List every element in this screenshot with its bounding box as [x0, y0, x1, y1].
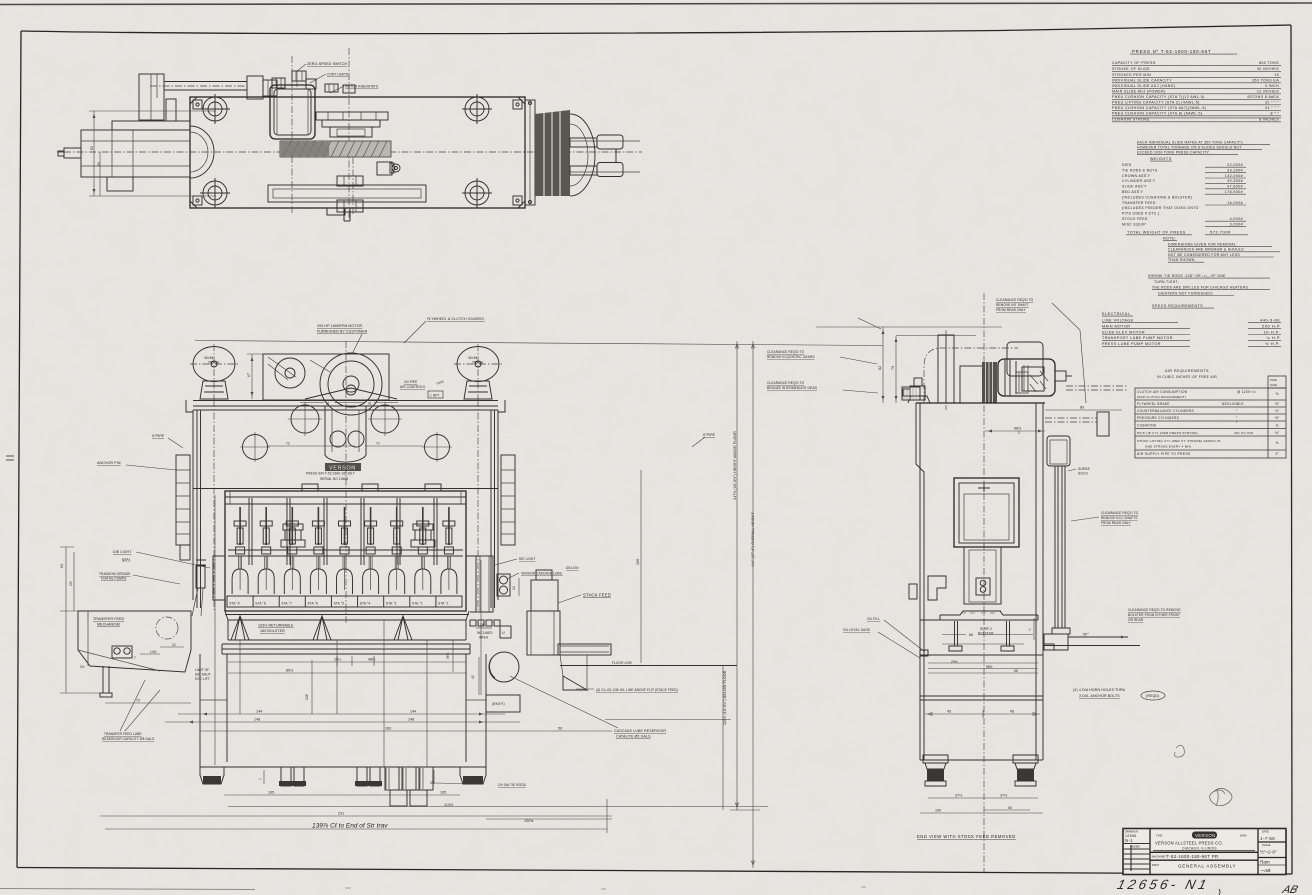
svg-text:105: 105: [268, 791, 274, 795]
svg-text:55½: 55½: [986, 665, 993, 669]
svg-text:⅛: ⅛: [1276, 441, 1279, 445]
svg-text:STA.°8: STA.°8: [255, 602, 266, 606]
svg-text:2½: 2½: [69, 581, 73, 586]
svg-text:Ram: Ram: [1260, 860, 1270, 865]
svg-text:67: 67: [247, 373, 251, 377]
svg-text:8 ″ ″: 8 ″ ″: [1270, 112, 1279, 116]
svg-text:SLIDE ASSʼY: SLIDE ASSʼY: [1122, 185, 1147, 189]
svg-text:15: 15: [1274, 73, 1279, 77]
svg-text:72: 72: [376, 442, 380, 446]
svg-text:SHRINK TIE RODS .228″ OR ¹: SHRINK TIE RODS .228″ OR ¹¹⁄₁₆ OF ONE: [1148, 274, 1226, 278]
svg-text:CUSHIONS: CUSHIONS: [1137, 424, 1156, 428]
svg-text:444" (37'-0") OVERALL HEIGHT: 444" (37'-0") OVERALL HEIGHT: [751, 512, 755, 567]
svg-text:CASCADE LUBE RESERVOIR: CASCADE LUBE RESERVOIR: [614, 729, 666, 733]
svg-text:INDIVIDUAL SLIDE ADJ (HAND): INDIVIDUAL SLIDE ADJ (HAND): [1112, 84, 1175, 88]
svg-text:800 TONS: 800 TONS: [1259, 61, 1279, 65]
svg-text:WEIGHTS: WEIGHTS: [1150, 157, 1172, 161]
svg-text:CLEARANCE REQ'D TO REMOVE: CLEARANCE REQ'D TO REMOVE: [1128, 608, 1181, 612]
svg-text:SPECS REQUIREMENTS: SPECS REQUIREMENTS: [1152, 304, 1203, 308]
svg-text:200 H.P: 200 H.P: [1262, 323, 1280, 328]
svg-text:82: 82: [878, 366, 882, 370]
svg-text:(RIGHT): (RIGHT): [492, 702, 505, 706]
svg-text:¼ H.P: ¼ H.P: [1266, 335, 1280, 340]
svg-text:100: 100: [935, 809, 941, 813]
svg-text:TRANSFER FEED: TRANSFER FEED: [1122, 201, 1156, 205]
svg-text:30,300#: 30,300#: [1227, 179, 1243, 183]
svg-text:105: 105: [440, 791, 446, 795]
svg-text:31: 31: [368, 402, 372, 406]
svg-text:4,000#: 4,000#: [1230, 217, 1243, 221]
svg-text:CLUTCH AIR CONSUMPTION: CLUTCH AIR CONSUMPTION: [1137, 390, 1188, 394]
svg-text:¾: ¾: [1276, 424, 1279, 428]
svg-text:56: 56: [558, 727, 562, 731]
svg-text:U: U: [502, 631, 505, 635]
svg-text:1-7-56: 1-7-56: [1260, 836, 1275, 841]
svg-text:18¼: 18¼: [334, 658, 342, 662]
svg-text:16,000#: 16,000#: [1227, 201, 1243, 205]
svg-text:SURGE: SURGE: [1078, 467, 1090, 471]
svg-text:STACK FEED: STACK FEED: [583, 593, 611, 598]
svg-text:97,600#: 97,600#: [1227, 185, 1243, 189]
svg-text:FROM REAR ONLY: FROM REAR ONLY: [1101, 521, 1132, 525]
svg-text:DRAWN IN: DRAWN IN: [1125, 830, 1138, 834]
svg-text:12 INCHES: 12 INCHES: [1257, 90, 1279, 94]
svg-text:3¼: 3¼: [430, 781, 435, 785]
svg-text:TRACK: TRACK: [208, 361, 220, 365]
svg-text:PRESS LUBE PUMP MOTOR: PRESS LUBE PUMP MOTOR: [1102, 342, 1161, 346]
svg-text:139⅞ Cℓ to End of Str trav: 139⅞ Cℓ to End of Str trav: [312, 823, 388, 830]
svg-text:79: 79: [891, 366, 895, 370]
svg-text:TURN TIGHT,: TURN TIGHT,: [1154, 280, 1179, 284]
svg-text:MECHANISM: MECHANISM: [97, 623, 120, 627]
svg-text:CLEARANCES ARE MINIMUM & SH: CLEARANCES ARE MINIMUM & SHOULD: [1168, 248, 1244, 252]
svg-text:60°: 60°: [1083, 633, 1089, 637]
svg-text:BOLSTER: BOLSTER: [978, 632, 994, 636]
svg-text:148: 148: [408, 718, 414, 722]
svg-text:126¾ (10'-6¾") BELOW FLOOR: 126¾ (10'-6¾") BELOW FLOOR: [723, 670, 727, 725]
svg-text:37½: 37½: [1000, 794, 1007, 798]
svg-text:TRANSFER FEED: TRANSFER FEED: [93, 617, 125, 621]
svg-text:36×84: 36×84: [204, 356, 214, 360]
svg-text:572,700#: 572,700#: [1210, 230, 1231, 235]
svg-text:LIMIT OF: LIMIT OF: [195, 668, 209, 672]
svg-text:NOTE:: NOTE:: [1163, 237, 1176, 241]
svg-text:3 DIA. ANCHOR BOLTS: 3 DIA. ANCHOR BOLTS: [1079, 694, 1120, 698]
svg-text:144: 144: [410, 710, 416, 714]
svg-text:PNEU CUSHION CAPACITY (STA 7)(: PNEU CUSHION CAPACITY (STA 7)(12 AWL-5): [1112, 95, 1205, 99]
svg-text:31: 31: [326, 402, 330, 406]
svg-text:(4) 4 DIA HORN HOLES THRU: (4) 4 DIA HORN HOLES THRU: [1073, 688, 1126, 692]
svg-text:TIE RODS & NUTS: TIE RODS & NUTS: [1122, 168, 1158, 172]
svg-text:AREA: AREA: [479, 636, 489, 640]
svg-text:EXC LIFT: EXC LIFT: [195, 677, 210, 681]
svg-text:THAN SHOWN.: THAN SHOWN.: [1168, 258, 1196, 262]
svg-text:THE RODS ARE DRILLED FOR CHICA: THE RODS ARE DRILLED FOR CHICAGO HEATERS: [1152, 286, 1248, 290]
svg-text:STA.°2: STA.°2: [412, 602, 423, 606]
svg-text:GENERAL ASSEMBLY: GENERAL ASSEMBLY: [1178, 864, 1236, 869]
svg-text:BOLSTER FROM EITHER FRONT: BOLSTER FROM EITHER FRONT: [1128, 613, 1180, 617]
svg-text:BED ASSʼY: BED ASSʼY: [1122, 190, 1144, 194]
svg-text:6"PIPE: 6"PIPE: [152, 434, 165, 438]
svg-text:ELECTRICAL.: ELECTRICAL.: [1102, 312, 1132, 316]
svg-text:10: 10: [512, 586, 516, 590]
svg-text:66: 66: [969, 633, 973, 637]
svg-text:DIES: DIES: [1122, 163, 1132, 167]
svg-text:PRESS S/N T-52-1600-180-66 T: PRESS S/N T-52-1600-180-66 T: [306, 472, 355, 476]
svg-text:STROKE OF SLIDE: STROKE OF SLIDE: [1112, 67, 1150, 71]
svg-text:DIE LIGHT: DIE LIGHT: [113, 550, 132, 554]
svg-text:CLEARANCE REQ'D TO: CLEARANCE REQ'D TO: [1101, 511, 1139, 515]
svg-text:NOT BE CONSIDERED FOR ANY: NOT BE CONSIDERED FOR ANY LESS: [1168, 253, 1240, 257]
svg-text:PRESSURE CYLINDERS: PRESSURE CYLINDERS: [1137, 416, 1179, 420]
svg-text:ANCHOR PIN: ANCHOR PIN: [97, 461, 121, 465]
svg-text:PNEU LIFTING CAPACITY (STA 3): PNEU LIFTING CAPACITY (STA 3) (4AWL-5): [1112, 101, 1200, 105]
svg-text:TRANSPORT LUBE PUMP MOTOR: TRANSPORT LUBE PUMP MOTOR: [1102, 336, 1173, 340]
svg-text:45: 45: [1010, 710, 1014, 714]
svg-text:VERSON CASCADE LUBE.: VERSON CASCADE LUBE.: [521, 572, 563, 576]
svg-text:MISC EQUIP: MISC EQUIP: [1122, 222, 1146, 226]
svg-text:STA.°3: STA.°3: [386, 602, 397, 606]
svg-text:NEGLIGIBLE: NEGLIGIBLE: [1222, 402, 1244, 406]
svg-text:CLEARANCE REQ'D TO: CLEARANCE REQ'D TO: [767, 381, 805, 385]
svg-text:FOR ML PUMPS: FOR ML PUMPS: [101, 577, 126, 581]
svg-text:PNEU CUSHION CAPACITY (STA 6&7: PNEU CUSHION CAPACITY (STA 6&7)(3AWL-5): [1112, 106, 1206, 110]
svg-text:VERSON ALLSTEEL PRESS CO.: VERSON ALLSTEEL PRESS CO.: [1155, 841, 1223, 846]
svg-text:INDIVIDUAL SLIDE CAPACITY: INDIVIDUAL SLIDE CAPACITY: [1112, 79, 1172, 83]
svg-text:SCALE: SCALE: [1262, 843, 1271, 847]
svg-text:TRANSOM GREASE: TRANSOM GREASE: [99, 572, 131, 576]
svg-text:231: 231: [338, 812, 344, 816]
svg-text:(REQD): (REQD): [1146, 694, 1159, 698]
svg-text:PIPE: PIPE: [1270, 378, 1277, 382]
svg-text:3⅛: 3⅛: [80, 665, 85, 669]
svg-text:CYLINDER ASSʼY: CYLINDER ASSʼY: [1122, 179, 1156, 183]
svg-text:CAPACITY OF PRESS: CAPACITY OF PRESS: [1112, 61, 1156, 65]
svg-text:OIL FILL: OIL FILL: [867, 617, 880, 621]
svg-text:TOTAL WEIGHT OF PRESS: TOTAL WEIGHT OF PRESS: [1127, 231, 1186, 235]
svg-text:42: 42: [471, 675, 475, 679]
svg-text:32 ″ ″ ″: 32 ″ ″ ″: [1265, 101, 1279, 105]
svg-text:SOL'N.: SOL'N.: [1078, 472, 1089, 476]
svg-text:THIS: THIS: [1156, 834, 1163, 838]
svg-text:MACHINE: MACHINE: [1152, 855, 1165, 859]
svg-text:STA.°1: STA.°1: [438, 602, 449, 606]
svg-text:39,300#: 39,300#: [1227, 168, 1243, 172]
svg-text:SERIAL NO 12668: SERIAL NO 12668: [320, 477, 348, 481]
svg-text:2: 2: [1018, 431, 1020, 435]
svg-text:14½: 14½: [150, 650, 157, 654]
svg-text:REMOVE ECC SHAFTS: REMOVE ECC SHAFTS: [1101, 516, 1138, 520]
svg-text:EACH INDIVIDUAL SLIDE RATED: EACH INDIVIDUAL SLIDE RATED AT 350 TONS …: [1137, 141, 1244, 145]
svg-text:(HEATERS NOT FURNISHED): (HEATERS NOT FURNISHED): [1158, 291, 1213, 295]
svg-text:10-H.P.: 10-H.P.: [1263, 329, 1280, 334]
svg-text:PITS USED # ETC.): PITS USED # ETC.): [1122, 212, 1159, 216]
svg-text:CHICAGO, ILLINOIS: CHICAGO, ILLINOIS: [1182, 847, 1217, 851]
svg-text:200 HP 1800RPM MOTOR: 200 HP 1800RPM MOTOR: [317, 324, 363, 328]
svg-text:6"PIPE: 6"PIPE: [703, 433, 716, 437]
svg-text:SLIDE ELEV MOTOR: SLIDE ELEV MOTOR: [1102, 330, 1145, 334]
svg-text:36×84: 36×84: [468, 356, 478, 360]
svg-text:7: 7: [134, 656, 136, 660]
svg-text:INCLINED: INCLINED: [477, 631, 493, 635]
svg-text:3/4 PIPE: 3/4 PIPE: [404, 380, 417, 384]
svg-text:CLEARANCE REQ'D TO: CLEARANCE REQ'D TO: [996, 298, 1034, 302]
svg-text:AIR SUPPLY PIPE TO PRESS: AIR SUPPLY PIPE TO PRESS: [1137, 452, 1191, 456]
svg-text:VERSON: VERSON: [1195, 833, 1216, 838]
svg-text:STA.°5: STA.°5: [334, 602, 345, 606]
svg-text:OIL LEVEL GAGE: OIL LEVEL GAGE: [843, 628, 870, 632]
svg-text:CATALITE Ø5 GALS: CATALITE Ø5 GALS: [616, 735, 651, 739]
svg-text:(INCLUDES FEEDER THAT GOES ONT: (INCLUDES FEEDER THAT GOES ONTO: [1122, 206, 1199, 210]
svg-text:HOWEVER TOTAL TONNAGE ON 8: HOWEVER TOTAL TONNAGE ON 8 SLIDES SHOULD…: [1137, 146, 1242, 150]
svg-text:144: 144: [256, 710, 262, 714]
svg-text:FURNISHED BY CUSTOMER: FURNISHED BY CUSTOMER: [317, 330, 368, 334]
svg-text:END VIEW WITH STOCK FEED: END VIEW WITH STOCK FEED REMOVED: [917, 834, 1016, 839]
svg-text:COUNTERBALANCE CYLINDERS: COUNTERBALANCE CYLINDERS: [1137, 409, 1194, 413]
svg-text:IN CUBIC INCHES OF FREE AIR: IN CUBIC INCHES OF FREE AIR: [1157, 375, 1217, 379]
svg-text:½″=1'-0″: ½″=1'-0″: [1260, 850, 1277, 855]
svg-text:72: 72: [286, 442, 290, 446]
svg-text:PICK UP CYL.(PER PRESS STROKE): PICK UP CYL.(PER PRESS STROKE): [1137, 431, 1198, 435]
svg-text:12656- N1: 12656- N1: [1116, 877, 1211, 892]
svg-text:FROM REAR ONLY: FROM REAR ONLY: [996, 308, 1027, 312]
svg-text:148: 148: [254, 718, 260, 722]
svg-text:N-1: N-1: [1125, 838, 1133, 843]
svg-text:REMOVE INT SHAFT: REMOVE INT SHAFT: [996, 303, 1029, 307]
svg-text:TRANSFER FEED LUBE: TRANSFER FEED LUBE: [104, 732, 142, 736]
svg-text:FLYWHEEL & CLUTCH GUARDS.: FLYWHEEL & CLUTCH GUARDS.: [427, 317, 485, 321]
svg-text:24 ″ ″ ″: 24 ″ ″ ″: [1265, 106, 1279, 110]
svg-text:176,500#: 176,500#: [1225, 190, 1243, 194]
svg-text:(4) 2¼ OIL DIA OIL LINE ABOVE: (4) 2¼ OIL DIA OIL LINE ABOVE FL’R (STAC…: [596, 688, 678, 692]
svg-text:22: 22: [172, 643, 176, 647]
svg-text:FLOOR LINE: FLOOR LINE: [612, 661, 633, 665]
svg-text:361 CU INS.: 361 CU INS.: [1234, 431, 1254, 435]
svg-text:440-3-60: 440-3-60: [1260, 318, 1280, 323]
svg-text:MAIN MOTOR: MAIN MOTOR: [1102, 324, 1130, 328]
svg-text:1 NPT: 1 NPT: [430, 394, 440, 398]
svg-text:REMOVE ECCENTRIC GEARS: REMOVE ECCENTRIC GEARS: [767, 355, 815, 359]
svg-text:STA.°7: STA.°7: [281, 602, 292, 606]
svg-text:193½ RETURNABLE: 193½ RETURNABLE: [258, 624, 294, 628]
svg-text:1½ DIA TIE RODS: 1½ DIA TIE RODS: [498, 783, 526, 787]
svg-text:⁾T-52-1600-180-66T PR: ⁾T-52-1600-180-66T PR: [1165, 854, 1219, 859]
svg-text:DIMENSIONS GIVEN FOR REMOVA: DIMENSIONS GIVEN FOR REMOVAL: [1168, 243, 1236, 247]
svg-text:PART: PART: [1152, 863, 1159, 867]
svg-text:DELION: DELION: [566, 566, 579, 570]
svg-text:160: 160: [385, 727, 391, 731]
svg-text:RESERVOIR CAPACITY Ø5 GALS: RESERVOIR CAPACITY Ø5 GALS: [102, 737, 154, 741]
svg-text:45TONS 8.8#EA: 45TONS 8.8#EA: [1247, 95, 1279, 99]
svg-text:36¾: 36¾: [446, 652, 450, 659]
svg-text:(PER CLUTCH ENGAGEMENT): (PER CLUTCH ENGAGEMENT): [1137, 395, 1186, 399]
svg-text:@ 1200› in: @ 1200› in: [1237, 390, 1256, 394]
svg-text:350 TONS EA: 350 TONS EA: [1252, 79, 1279, 83]
svg-text:142,000#: 142,000#: [1225, 174, 1243, 178]
svg-text:(INCLUDES CUSHIONS & BOLSTER): (INCLUDES CUSHIONS & BOLSTER): [1122, 195, 1192, 199]
svg-text:⅝: ⅝: [1276, 392, 1279, 396]
svg-text:80: 80: [1080, 406, 1084, 410]
svg-text:TRACK: TRACK: [472, 361, 484, 365]
svg-text:180 BOLSTER: 180 BOLSTER: [260, 629, 285, 633]
svg-text:PNEU CUSHION CAPACITY (STA 8): PNEU CUSHION CAPACITY (STA 8) (6AWL-5): [1112, 112, 1203, 116]
svg-text:98½: 98½: [122, 558, 131, 563]
svg-text:30: 30: [97, 162, 101, 166]
svg-text:SURF 2: SURF 2: [980, 627, 992, 631]
svg-text:STA.°9: STA.°9: [229, 602, 240, 606]
svg-text:AIR REQUIREMENTS: AIR REQUIREMENTS: [1165, 369, 1209, 373]
svg-text:66½: 66½: [1014, 427, 1021, 431]
svg-text:EXCEED 1000 TONS PRESS CAPA: EXCEED 1000 TONS PRESS CAPACITY.: [1137, 151, 1210, 155]
svg-text:29½: 29½: [951, 660, 958, 664]
svg-text:60: 60: [90, 146, 94, 150]
svg-text:⅞: ⅞: [1028, 628, 1032, 631]
svg-text:AIR CONTROLS: AIR CONTROLS: [400, 385, 425, 389]
svg-text:3 INCH: 3 INCH: [1265, 84, 1279, 88]
svg-text:72: 72: [136, 699, 140, 703]
svg-text:FLYWHEEL BRAKE: FLYWHEEL BRAKE: [1137, 402, 1170, 406]
svg-text:150: 150: [636, 559, 640, 565]
svg-text:STROKES PER MIN: STROKES PER MIN: [1112, 73, 1151, 77]
svg-text:CONT LIMITS: CONT LIMITS: [327, 73, 348, 77]
svg-text:∼AB: ∼AB: [1260, 868, 1271, 874]
svg-text:STOCK LIFTING CYL.(PER CT. ST: STOCK LIFTING CYL.(PER CT. STROKE) 3320C…: [1137, 439, 1221, 443]
svg-text:22,000#: 22,000#: [1227, 163, 1243, 167]
svg-text:45: 45: [947, 710, 951, 714]
svg-text:ONE STROKE EVERY 4 MIN.: ONE STROKE EVERY 4 MIN.: [1145, 445, 1192, 449]
svg-text:STA.°4: STA.°4: [360, 602, 371, 606]
svg-text:LINE VOLTAGE: LINE VOLTAGE: [1102, 319, 1134, 323]
svg-text:½ H.P.: ½ H.P.: [1265, 341, 1280, 346]
svg-text:85½: 85½: [286, 669, 293, 673]
svg-text:BRONZE INTERMEDIATE GEAR: BRONZE INTERMEDIATE GEAR: [767, 386, 818, 390]
svg-text:MAIN SLIDE ADJ (POWER): MAIN SLIDE ADJ (POWER): [1112, 90, 1166, 94]
svg-text:63: 63: [60, 564, 64, 568]
svg-text:PRESS Nº T-52-1600-180-66T: PRESS Nº T-52-1600-180-66T: [1132, 49, 1211, 54]
svg-text:37½: 37½: [955, 794, 962, 798]
svg-text:SIZE: SIZE: [1270, 383, 1277, 387]
svg-text:CROWN ASSʼY: CROWN ASSʼY: [1122, 174, 1151, 178]
svg-text:68: 68: [1014, 669, 1018, 673]
svg-text:STOCK FEED: STOCK FEED: [1122, 217, 1148, 221]
svg-text:DATE: DATE: [1262, 830, 1269, 834]
svg-text:100⅝: 100⅝: [524, 819, 533, 823]
svg-text:DIE SHUT: DIE SHUT: [195, 673, 211, 677]
svg-text:OR REAR: OR REAR: [1128, 618, 1144, 622]
svg-text:STA.°6: STA.°6: [308, 602, 319, 606]
svg-text:DIE LIGHT: DIE LIGHT: [519, 557, 536, 561]
svg-text:ZERO-SPEED SWITCH: ZERO-SPEED SWITCH: [307, 62, 348, 66]
svg-text:3,000#: 3,000#: [1230, 222, 1243, 226]
svg-text:317½ (26'-5½") HEIGHT ABOVE FL: 317½ (26'-5½") HEIGHT ABOVE FLOOR: [733, 431, 737, 500]
svg-text:50: 50: [1008, 806, 1012, 810]
svg-text:7: 7: [259, 778, 263, 780]
svg-text:DWG: DWG: [1240, 834, 1247, 838]
svg-text:108: 108: [305, 694, 309, 700]
svg-text:CLEARANCE REQ'D TO: CLEARANCE REQ'D TO: [767, 350, 805, 354]
svg-text:30 INCHES: 30 INCHES: [1257, 67, 1279, 71]
